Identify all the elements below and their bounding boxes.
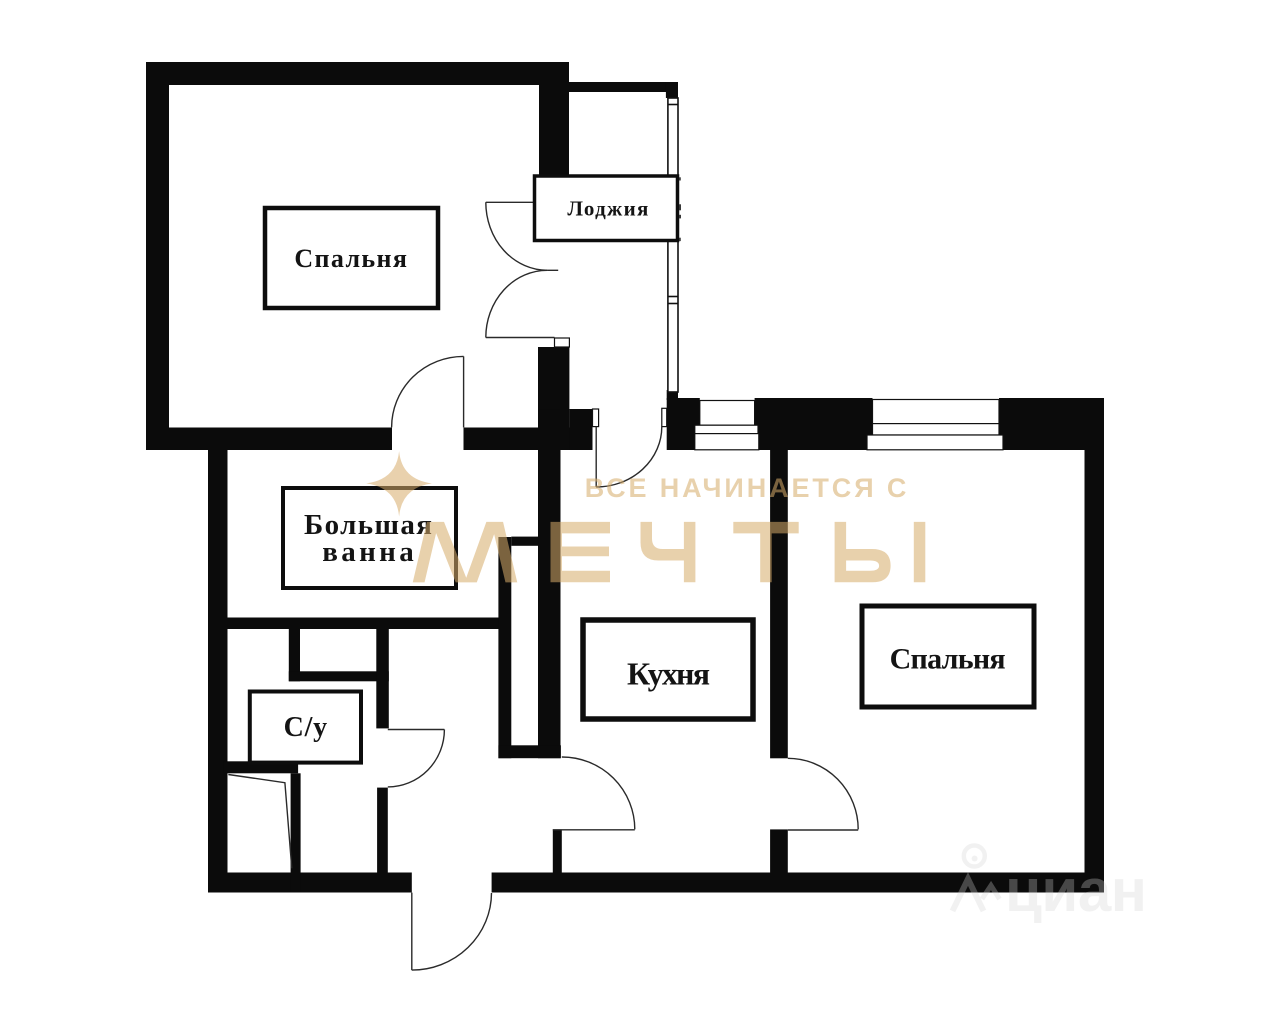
svg-text:циан: циан: [1005, 857, 1147, 924]
svg-text:С/у: С/у: [284, 712, 328, 743]
svg-text:Кухня: Кухня: [627, 655, 710, 691]
svg-text:ванна: ванна: [322, 536, 414, 568]
svg-text:Спальня: Спальня: [890, 643, 1006, 676]
svg-text:Лоджия: Лоджия: [567, 197, 648, 221]
svg-text:Спальня: Спальня: [294, 244, 407, 273]
